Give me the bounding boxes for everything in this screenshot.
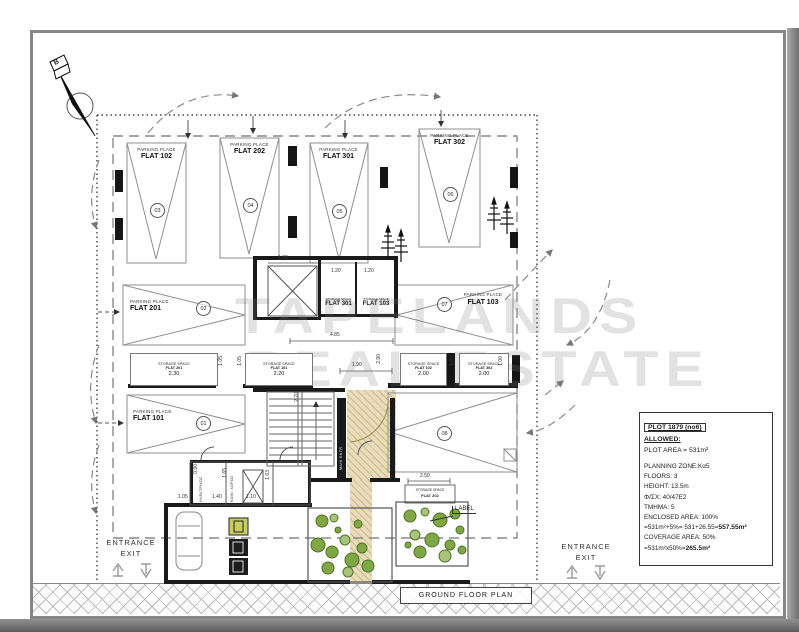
info-row: HEIGHT: 13.5m <box>644 482 768 492</box>
storage-flat102: STORAGE SPACE FLAT 102 2.00 <box>400 353 447 386</box>
dim-v165: 1.65 <box>222 468 228 478</box>
info-row: FLOORS: 3 <box>644 472 768 482</box>
dim-v163: 1.63 <box>265 470 271 480</box>
storage-202-dim: 2.50 <box>420 473 430 479</box>
stall-201-flat: FLAT 201 <box>130 305 178 312</box>
room-common-label: ΚΟΙΝ. ΧΩΡΟΣ <box>230 466 234 502</box>
stall-103-flat: FLAT 103 <box>455 299 511 306</box>
staircase <box>267 392 334 466</box>
plot-info-panel: PLOT 1879 (no6) ALLOWED: PLOT AREA = 531… <box>639 412 773 566</box>
stall-202-flat: FLAT 202 <box>222 148 277 155</box>
stall-202-type: PARKING PLACE <box>222 142 277 147</box>
dim-core: 4.85 <box>330 332 340 338</box>
dim-hall-h2: 2.90 <box>376 354 382 364</box>
door-arc <box>350 398 388 442</box>
stall-102-type: PARKING PLACE <box>129 147 184 152</box>
allowed-heading: ALLOWED: <box>644 434 768 445</box>
storage-flat201: STORAGE SPACE FLAT 201 2.30 <box>130 353 218 386</box>
tree-symbols <box>381 198 514 262</box>
entrance-arrow-icons <box>113 564 605 579</box>
info-row: COVERAGE AREA: 50% <box>644 533 768 543</box>
dim-v105a: 1.05 <box>218 356 224 366</box>
entrance-right-line2: EXIT <box>546 552 626 563</box>
info-row: PLANNING ZONE:Kα5 <box>644 462 768 472</box>
plan-title-box: GROUND FLOOR PLAN <box>400 587 532 604</box>
stall-103-number: 07 <box>437 297 452 312</box>
label-callout: LABEL <box>452 506 476 514</box>
info-row: ENCLOSED AREA: 100% <box>644 513 768 523</box>
car-outline <box>176 512 202 570</box>
plan-title: GROUND FLOOR PLAN <box>419 592 513 599</box>
dim-v105b: 1.05 <box>237 356 243 366</box>
viewer-scrollbar-right[interactable] <box>787 28 799 632</box>
dim-v100a: 1.00 <box>449 356 455 366</box>
stall-08-number: 08 <box>437 426 452 441</box>
stall-101-number: 01 <box>196 416 211 431</box>
info-row: Φ/ΣΧ: 40/47E2 <box>644 493 768 503</box>
garbage-bins <box>229 518 248 575</box>
north-arrow-icon <box>50 55 95 136</box>
viewer-scrollbar-bottom[interactable] <box>0 619 799 632</box>
stall-301-type: PARKING PLACE <box>311 147 366 152</box>
watermark-line1: TAPELANDS <box>235 287 644 345</box>
entrance-exit-right: ENTRANCE EXIT <box>546 541 626 563</box>
stall-103-type: PARKING PLACE <box>455 292 511 297</box>
plot-area-line: PLOT AREA = 531m² <box>644 445 768 456</box>
stall-302-flat: FLAT 302 <box>421 139 478 146</box>
stall-101-flat: FLAT 101 <box>133 415 181 422</box>
dim-r105: 1.05 <box>178 494 188 500</box>
dim-hall-h: 2.70 <box>294 392 300 402</box>
dim-v100b: 1.00 <box>498 356 504 366</box>
stall-301-flat: FLAT 301 <box>311 153 366 160</box>
dim-r110: 1.10 <box>246 494 256 500</box>
storage-103-flat: FLAT 103 <box>358 301 394 307</box>
plot-title: PLOT 1879 (no6) <box>644 423 706 432</box>
dim-r140: 1.40 <box>212 494 222 500</box>
info-row: =531m²x50%=265.5m² <box>644 544 768 554</box>
stall-202-number: 04 <box>243 198 258 213</box>
storage-flat101: STORAGE SPACE FLAT 101 2.20 <box>245 353 313 386</box>
entrance-left-line1: ENTRANCE <box>93 537 169 548</box>
storage-301-dim: 1.20 <box>331 268 341 274</box>
entrance-exit-left: ENTRANCE EXIT <box>93 537 169 559</box>
dim-elevator: 1.80 <box>278 255 288 261</box>
storage-103-dim: 1.20 <box>364 268 374 274</box>
stall-201-number: 02 <box>196 301 211 316</box>
stall-201-type: PARKING PLACE <box>130 299 178 304</box>
dim-hall-w: 1.90 <box>352 362 362 368</box>
stall-102-flat: FLAT 102 <box>129 153 184 160</box>
info-row: =531m²+5%= 531+26.55=557.55m² <box>644 523 768 533</box>
stall-301-number: 05 <box>332 204 347 219</box>
stall-101-type: PARKING PLACE <box>133 409 181 414</box>
entrance-right-line1: ENTRANCE <box>546 541 626 552</box>
stall-302-type: PARKING PLACE <box>421 133 478 138</box>
storage-301-flat: FLAT 301 <box>322 301 355 307</box>
main-entrance-label: MAIN ENTR. <box>339 408 343 470</box>
storage-202-type: STORAGE SPACE <box>407 488 453 492</box>
stall-102-number: 03 <box>150 203 165 218</box>
info-row: TMHMA: 5 <box>644 503 768 513</box>
floor-plan-viewer: B TAPELANDS REAL ESTATE PARKING PLACE FL… <box>0 0 799 632</box>
room-electrical-label: ΗΛΕΚΤΡΙΚΟΣ <box>199 466 203 502</box>
storage-202-flat: FLAT 202 <box>407 493 453 498</box>
entrance-left-line2: EXIT <box>93 548 169 559</box>
stall-302-number: 06 <box>443 187 458 202</box>
